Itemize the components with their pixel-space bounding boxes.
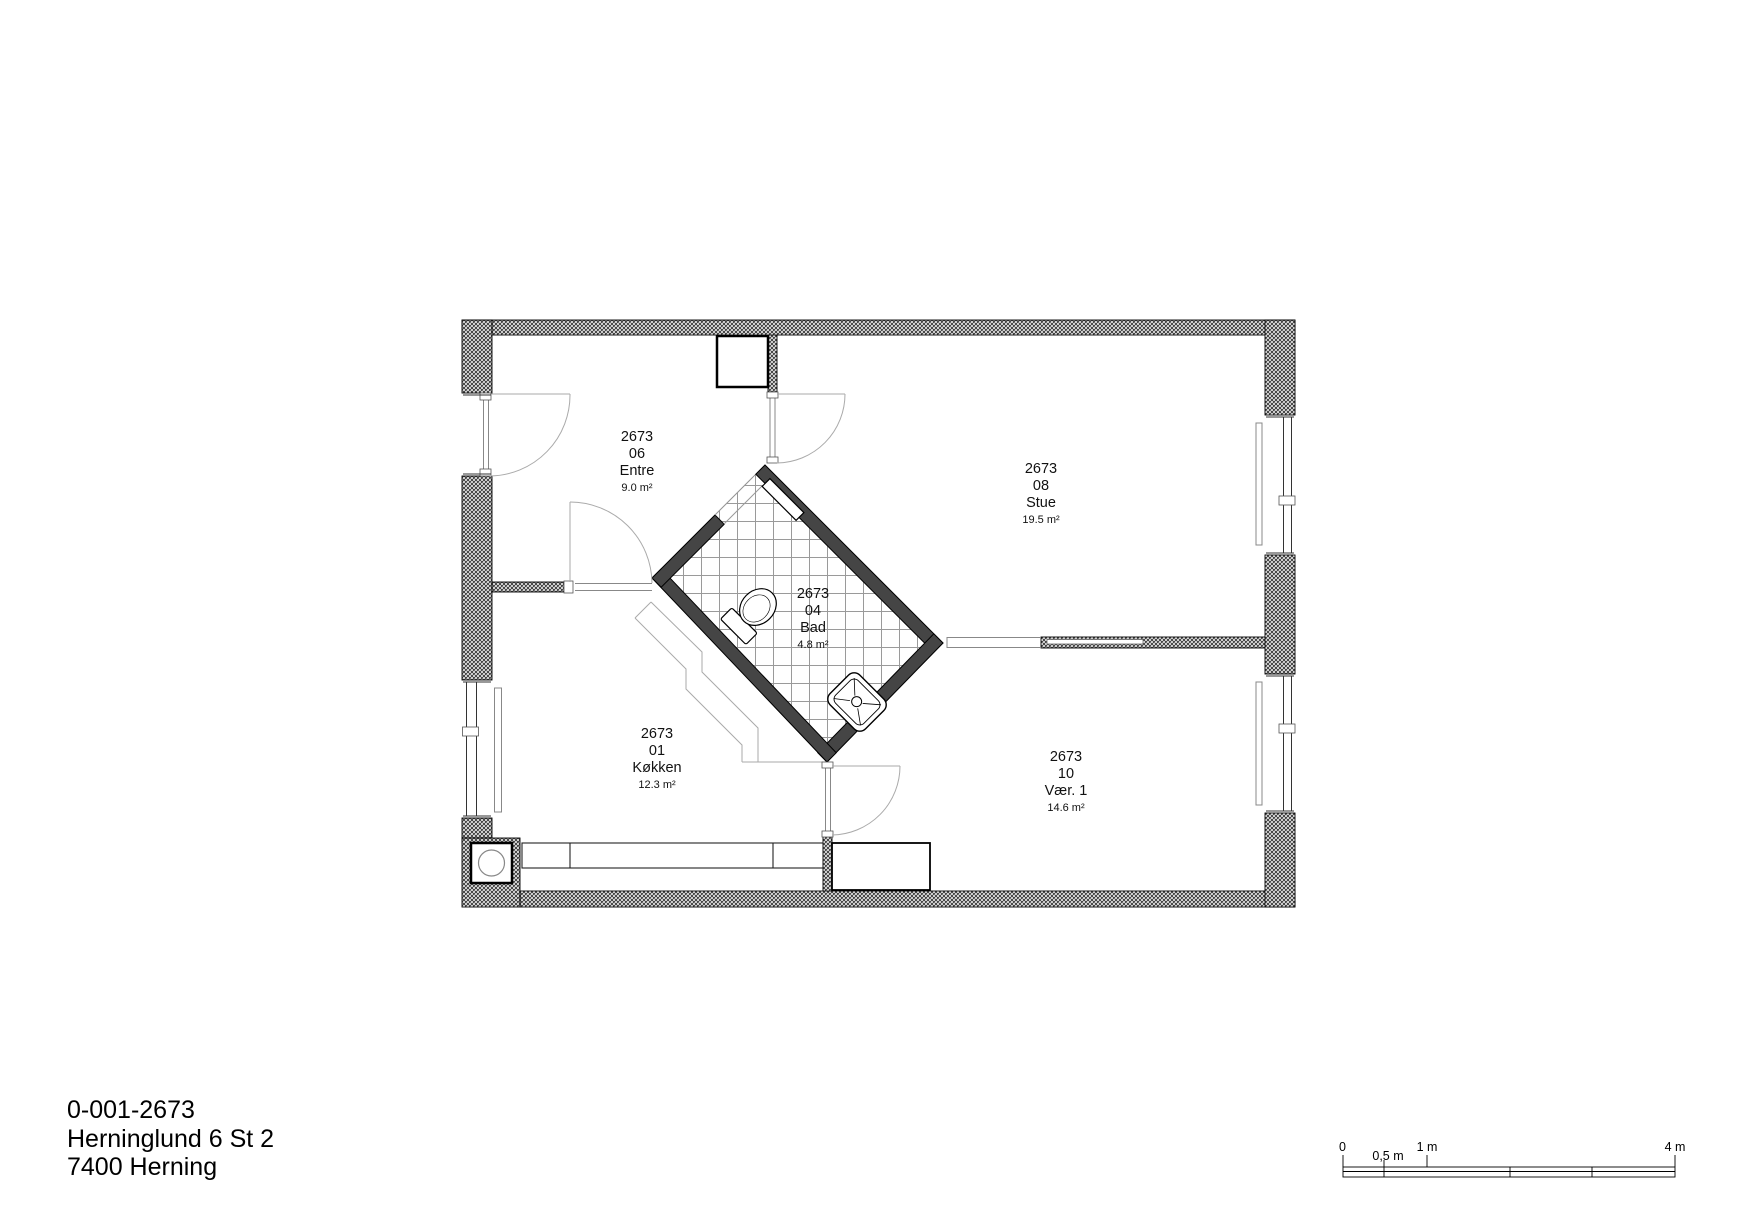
room-area: 14.6 m² — [1047, 801, 1084, 815]
wall-left-b — [462, 476, 492, 680]
plan-id: 0-001-2673 — [67, 1096, 274, 1125]
window-entre-left — [463, 395, 491, 474]
window-vaer-right — [1256, 676, 1295, 811]
room-area: 9.0 m² — [621, 481, 652, 495]
room-number: 06 — [629, 446, 645, 463]
door-entre-koekken — [564, 502, 652, 593]
room-number: 10 — [1058, 766, 1074, 783]
scale-tick-0: 0 — [1339, 1140, 1346, 1154]
entrance-door — [480, 393, 570, 476]
radiator — [495, 688, 502, 812]
scale-tick-05m: 0,5 m — [1372, 1149, 1403, 1163]
title-block: 0-001-2673 Herninglund 6 St 2 7400 Herni… — [67, 1096, 274, 1182]
passage-stue-vaer — [947, 637, 1041, 648]
room-label-bad: 2673 04 Bad 4.8 m² — [797, 586, 829, 652]
wardrobe — [832, 843, 930, 890]
room-number: 04 — [805, 603, 821, 620]
radiator — [1256, 423, 1262, 545]
door-swing-arc — [490, 394, 570, 476]
door-entre-stue — [767, 392, 845, 463]
window-koekken-left — [463, 682, 502, 816]
wall-right-c — [1265, 813, 1295, 907]
wall-right-b — [1265, 555, 1295, 674]
room-number: 08 — [1033, 478, 1049, 495]
address-line: Herninglund 6 St 2 — [67, 1125, 274, 1154]
wall-right-a — [1265, 320, 1295, 415]
radiator — [1256, 682, 1262, 805]
wall-bottom — [520, 891, 1295, 907]
door-swing-arc — [832, 766, 900, 835]
sliding-door-slot — [1047, 640, 1143, 645]
wall-top — [462, 320, 1295, 335]
duct-shaft — [717, 336, 768, 387]
door-koekken-vaer — [822, 762, 900, 837]
scale-tick-1m: 1 m — [1417, 1140, 1438, 1154]
room-area: 19.5 m² — [1022, 513, 1059, 527]
room-project: 2673 — [1025, 461, 1057, 478]
floor-drain-unit — [471, 843, 512, 883]
scale-tick-4m: 4 m — [1665, 1140, 1686, 1154]
room-label-koekken: 2673 01 Køkken 12.3 m² — [632, 726, 681, 792]
wall-left-a — [462, 320, 492, 393]
floor-plan-drawing — [0, 0, 1737, 1228]
room-label-stue: 2673 08 Stue 19.5 m² — [1022, 461, 1059, 527]
kitchen-counter — [522, 843, 823, 868]
room-label-vaer1: 2673 10 Vær. 1 14.6 m² — [1045, 749, 1088, 815]
room-label-entre: 2673 06 Entre 9.0 m² — [620, 429, 655, 495]
room-name: Entre — [620, 463, 655, 480]
door-swing-arc — [570, 502, 652, 583]
wall-stub-vaer — [823, 837, 832, 891]
address-line: 7400 Herning — [67, 1153, 274, 1182]
wall-stub-entre-stue — [768, 335, 777, 392]
window-stue-right — [1256, 417, 1295, 553]
door-swing-arc — [777, 394, 845, 463]
room-name: Køkken — [632, 760, 681, 777]
room-project: 2673 — [621, 429, 653, 446]
room-project: 2673 — [641, 726, 673, 743]
room-name: Vær. 1 — [1045, 783, 1088, 800]
room-name: Stue — [1026, 495, 1056, 512]
floor-plan-page: { "document": { "type": "architectural-f… — [0, 0, 1737, 1228]
room-project: 2673 — [1050, 749, 1082, 766]
room-project: 2673 — [797, 586, 829, 603]
room-name: Bad — [800, 620, 826, 637]
room-area: 4.8 m² — [797, 638, 828, 652]
wall-entre-koekken — [492, 582, 564, 592]
room-number: 01 — [649, 743, 665, 760]
room-area: 12.3 m² — [638, 778, 675, 792]
